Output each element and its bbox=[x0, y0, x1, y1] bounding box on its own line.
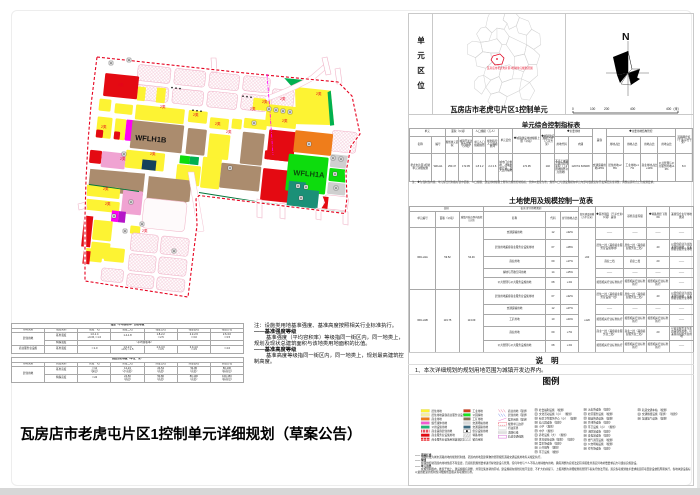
svg-text:社区服务设施 （规划）: 社区服务设施 （规划） bbox=[588, 412, 615, 416]
svg-text:社会福利设施 （规划）: 社会福利设施 （规划） bbox=[539, 408, 566, 412]
svg-text:变电站设施 （规划）: 变电站设施 （规划） bbox=[588, 434, 612, 438]
svg-text:公共厕所 （规划）: 公共厕所 （规划） bbox=[539, 446, 560, 450]
svg-text:中学 （规划）: 中学 （规划） bbox=[539, 429, 555, 433]
svg-text:留白用地: 留白用地 bbox=[473, 437, 484, 441]
svg-text:社区卫生服务中心（小） （规划）: 社区卫生服务中心（小） （规划） bbox=[539, 416, 579, 420]
svg-text:公交场站设施 （规划）: 公交场站设施 （规划） bbox=[588, 442, 615, 446]
svg-text:派出所设施 （规划）: 派出所设施 （规划） bbox=[588, 408, 612, 412]
svg-text:2类: 2类 bbox=[120, 156, 126, 161]
svg-text:2类: 2类 bbox=[193, 112, 199, 117]
svg-text:环卫设施（小） （规划）: 环卫设施（小） （规划） bbox=[588, 425, 617, 429]
svg-text:居住用地（现状）: 居住用地（现状） bbox=[508, 413, 529, 417]
svg-text:幼儿园设施 （规划）: 幼儿园设施 （规划） bbox=[539, 421, 563, 425]
svg-text:2类: 2类 bbox=[101, 124, 107, 129]
svg-text:2类: 2类 bbox=[280, 96, 286, 101]
svg-text:娱乐康体用地: 娱乐康体用地 bbox=[432, 421, 448, 425]
svg-text:交通枢纽设施（现状） （规划）: 交通枢纽设施（现状） （规划） bbox=[642, 412, 679, 416]
svg-text:2类: 2类 bbox=[226, 129, 232, 134]
svg-text:轨道交通车站 （规划）: 轨道交通车站 （规划） bbox=[642, 408, 669, 412]
svg-text:400: 400 bbox=[630, 107, 636, 111]
svg-text:供应设施用地: 供应设施用地 bbox=[473, 429, 489, 433]
svg-text:2类: 2类 bbox=[105, 201, 111, 206]
svg-text:商业服务业设施用地: 商业服务业设施用地 bbox=[432, 433, 456, 437]
svg-text:养老设施（大） （规划）: 养老设施（大） （规划） bbox=[539, 433, 568, 437]
svg-text:2类: 2类 bbox=[160, 104, 166, 109]
svg-text:公用设施用地: 公用设施用地 bbox=[432, 425, 448, 429]
svg-text:2类: 2类 bbox=[250, 106, 256, 111]
svg-text:0: 0 bbox=[572, 107, 574, 111]
svg-text:体育健身设施（规划） （规划）: 体育健身设施（规划） （规划） bbox=[539, 437, 576, 441]
svg-text:特殊用地: 特殊用地 bbox=[473, 433, 484, 437]
svg-text:商业兼容居住用地: 商业兼容居住用地 bbox=[432, 429, 453, 433]
svg-text:2类: 2类 bbox=[282, 118, 288, 123]
svg-text:交通运输用地: 交通运输用地 bbox=[473, 425, 489, 429]
svg-text:燃气调压设施 （规划）: 燃气调压设施 （规划） bbox=[588, 438, 615, 442]
svg-text:100: 100 bbox=[590, 107, 596, 111]
svg-text:公园绿地: 公园绿地 bbox=[473, 413, 484, 417]
svg-text:行政区界: 行政区界 bbox=[508, 426, 519, 430]
svg-text:娱乐用地（现状）: 娱乐用地（现状） bbox=[508, 418, 529, 422]
svg-text:轨道交通线路: 轨道交通线路 bbox=[508, 435, 524, 439]
svg-text:2类: 2类 bbox=[262, 99, 268, 104]
svg-text:文化活动设施（小） （规划）: 文化活动设施（小） （规划） bbox=[539, 412, 573, 416]
svg-text:道路红线: 道路红线 bbox=[508, 430, 519, 434]
svg-text:工业用地: 工业用地 bbox=[473, 409, 484, 413]
svg-text:2类: 2类 bbox=[142, 228, 148, 233]
svg-text:规划单元边界: 规划单元边界 bbox=[508, 422, 524, 426]
svg-text:2类: 2类 bbox=[103, 186, 109, 191]
svg-text:开闭所设施 （规划）: 开闭所设施 （规划） bbox=[588, 421, 612, 425]
svg-text:交通场站用地: 交通场站用地 bbox=[473, 421, 489, 425]
svg-text:商业用地: 商业用地 bbox=[432, 417, 443, 421]
svg-text:N: N bbox=[622, 31, 630, 43]
svg-text:2类: 2类 bbox=[150, 151, 156, 156]
svg-text:瓦房店市老虎屯片区1控制单元规划范围: 瓦房店市老虎屯片区1控制单元规划范围 bbox=[487, 66, 533, 70]
svg-text:消防站设施 （规划）: 消防站设施 （规划） bbox=[588, 429, 612, 433]
svg-text:2类: 2类 bbox=[316, 91, 322, 96]
svg-text:菜市场设施 （规划）: 菜市场设施 （规划） bbox=[539, 442, 563, 446]
svg-text:2类: 2类 bbox=[215, 121, 221, 126]
svg-text:200: 200 bbox=[604, 107, 610, 111]
svg-text:商业用地（现状）: 商业用地（现状） bbox=[508, 409, 529, 413]
svg-text:工矿用地: 工矿用地 bbox=[473, 417, 484, 421]
svg-text:居住用地: 居住用地 bbox=[432, 409, 443, 413]
svg-text:小学 （规划）: 小学 （规划） bbox=[539, 425, 555, 429]
svg-text:停车场设施 （规划）: 停车场设施 （规划） bbox=[588, 447, 612, 451]
svg-text:加油加气设施 （规划）: 加油加气设施 （规划） bbox=[642, 417, 669, 421]
svg-text:400（米）: 400（米） bbox=[666, 106, 681, 111]
svg-text:环卫设施 （规划）: 环卫设施 （规划） bbox=[539, 450, 560, 454]
svg-text:2类: 2类 bbox=[118, 82, 124, 87]
svg-text:邮政快递设施 （规划）: 邮政快递设施 （规划） bbox=[588, 416, 615, 420]
